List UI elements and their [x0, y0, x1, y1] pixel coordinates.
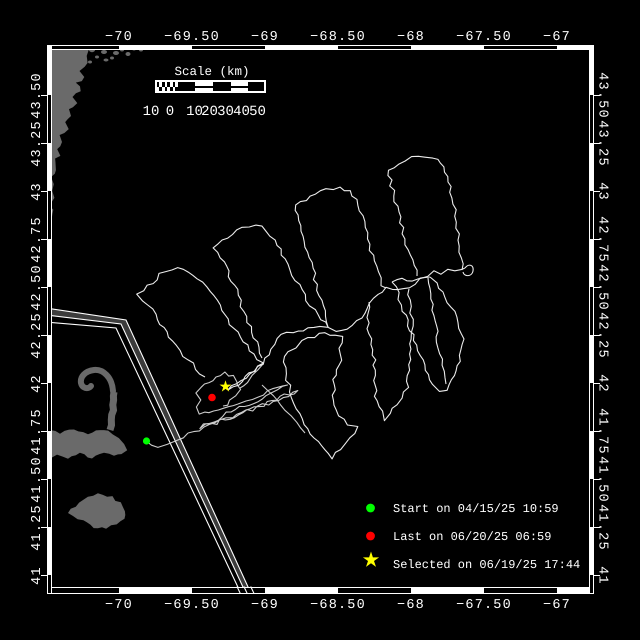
svg-text:43.50: 43.50	[595, 72, 610, 119]
svg-text:−67.50: −67.50	[456, 598, 512, 613]
svg-text:−68.50: −68.50	[310, 598, 366, 613]
svg-text:43: 43	[30, 182, 45, 201]
svg-text:−70: −70	[105, 598, 133, 613]
svg-text:42.25: 42.25	[30, 312, 45, 359]
svg-text:43: 43	[595, 182, 610, 201]
svg-text:−68.50: −68.50	[310, 30, 366, 45]
svg-text:41.75: 41.75	[30, 408, 45, 455]
svg-text:43.50: 43.50	[30, 72, 45, 119]
svg-text:42: 42	[30, 374, 45, 393]
svg-text:40: 40	[233, 104, 250, 120]
svg-text:20: 20	[201, 104, 218, 120]
svg-text:30: 30	[217, 104, 234, 120]
svg-text:0: 0	[166, 104, 174, 120]
svg-text:43.25: 43.25	[30, 120, 45, 167]
svg-text:−68: −68	[397, 30, 425, 45]
svg-text:−68: −68	[397, 598, 425, 613]
svg-text:−70: −70	[105, 30, 133, 45]
svg-text:Start on 04/15/25 10:59: Start on 04/15/25 10:59	[393, 502, 559, 516]
svg-text:Scale (km): Scale (km)	[174, 65, 249, 79]
svg-text:10: 10	[143, 104, 160, 120]
svg-text:−67.50: −67.50	[456, 30, 512, 45]
svg-text:42.50: 42.50	[595, 264, 610, 311]
svg-text:−69: −69	[251, 598, 279, 613]
svg-text:−67: −67	[543, 30, 571, 45]
svg-text:41.50: 41.50	[595, 456, 610, 503]
svg-text:Selected on 06/19/25 17:44: Selected on 06/19/25 17:44	[393, 558, 580, 572]
svg-text:41.50: 41.50	[30, 456, 45, 503]
svg-text:42.75: 42.75	[30, 216, 45, 263]
svg-text:Last on 06/20/25 06:59: Last on 06/20/25 06:59	[393, 530, 551, 544]
svg-text:42.25: 42.25	[595, 312, 610, 359]
svg-text:41.25: 41.25	[30, 504, 45, 551]
svg-text:41: 41	[30, 566, 45, 585]
svg-text:−69.50: −69.50	[164, 598, 220, 613]
svg-text:−69: −69	[251, 30, 279, 45]
svg-text:41.25: 41.25	[595, 504, 610, 551]
svg-text:41.75: 41.75	[595, 408, 610, 455]
svg-text:42.75: 42.75	[595, 216, 610, 263]
svg-text:−67: −67	[543, 598, 571, 613]
svg-text:−69.50: −69.50	[164, 30, 220, 45]
svg-text:42: 42	[595, 374, 610, 393]
svg-text:50: 50	[249, 104, 266, 120]
svg-text:43.25: 43.25	[595, 120, 610, 167]
svg-text:42.50: 42.50	[30, 264, 45, 311]
svg-text:41: 41	[595, 566, 610, 585]
